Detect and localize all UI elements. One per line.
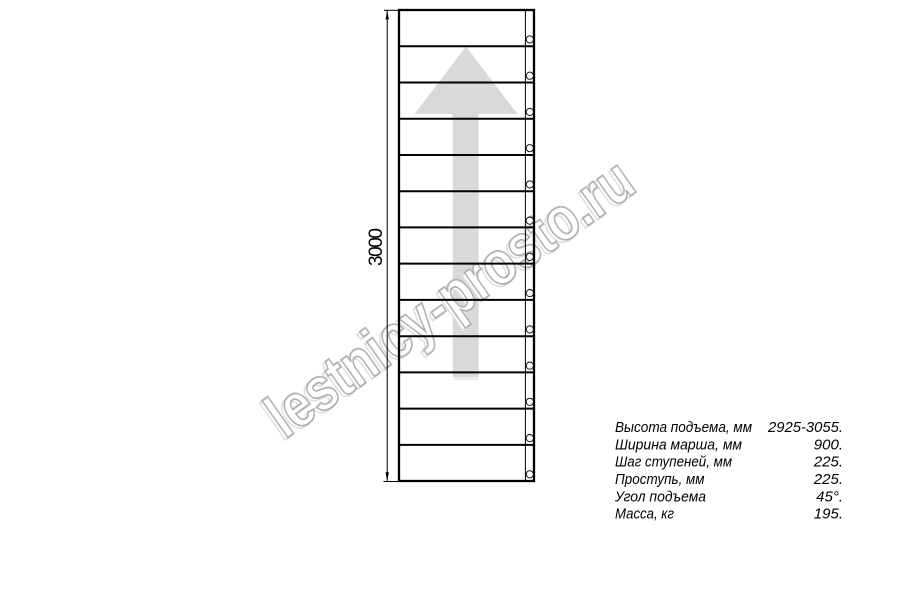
svg-text:Шаг ступеней, мм: Шаг ступеней, мм bbox=[615, 454, 732, 471]
svg-text:Высота подъема, мм: Высота подъема, мм bbox=[615, 419, 752, 436]
svg-text:Масса, кг: Масса, кг bbox=[615, 506, 675, 523]
svg-text:900.: 900. bbox=[814, 436, 843, 453]
svg-text:225.: 225. bbox=[813, 454, 843, 471]
svg-text:3000: 3000 bbox=[366, 228, 387, 266]
svg-text:225.: 225. bbox=[813, 471, 843, 488]
svg-text:45°.: 45°. bbox=[816, 488, 843, 505]
svg-text:195.: 195. bbox=[814, 506, 843, 523]
svg-text:2925-3055.: 2925-3055. bbox=[767, 419, 843, 436]
svg-text:Проступь, мм: Проступь, мм bbox=[615, 471, 705, 488]
svg-text:Ширина марша, мм: Ширина марша, мм bbox=[615, 436, 742, 453]
svg-text:Угол подъема: Угол подъема bbox=[614, 488, 706, 505]
